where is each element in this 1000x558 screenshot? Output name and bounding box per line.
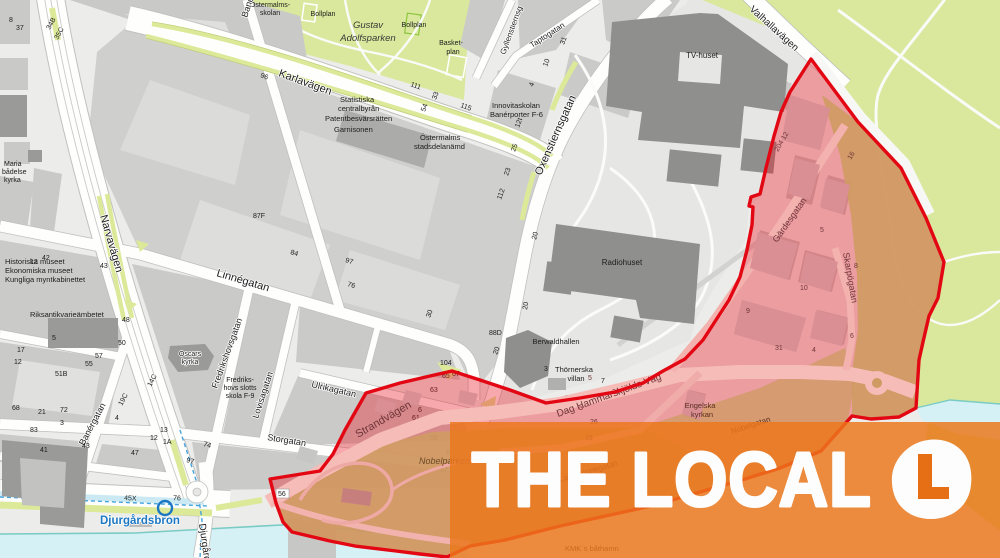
svg-text:47: 47 xyxy=(131,450,139,457)
svg-text:31: 31 xyxy=(775,345,783,352)
svg-text:9: 9 xyxy=(746,308,750,315)
svg-text:Basket-: Basket- xyxy=(439,40,463,47)
svg-text:Gustav: Gustav xyxy=(353,20,384,31)
svg-text:Engelska: Engelska xyxy=(685,401,717,410)
svg-text:Innovitaskolan: Innovitaskolan xyxy=(492,101,540,110)
svg-text:Fredriks-: Fredriks- xyxy=(226,377,254,384)
svg-text:Bollplan: Bollplan xyxy=(402,22,427,29)
svg-text:68: 68 xyxy=(12,405,20,412)
svg-text:Radiohuset: Radiohuset xyxy=(602,258,643,267)
svg-text:8: 8 xyxy=(9,17,13,24)
svg-text:Garnisonen: Garnisonen xyxy=(334,125,373,134)
svg-text:41: 41 xyxy=(40,447,48,454)
svg-text:56: 56 xyxy=(278,491,286,498)
svg-text:Riksantikvarieämbetet: Riksantikvarieämbetet xyxy=(30,310,105,319)
svg-text:55: 55 xyxy=(85,361,93,368)
svg-text:43: 43 xyxy=(100,263,108,270)
svg-text:3: 3 xyxy=(60,420,64,427)
svg-text:kyrka: kyrka xyxy=(4,177,21,184)
svg-text:skola F-9: skola F-9 xyxy=(226,393,255,400)
svg-text:8: 8 xyxy=(854,263,858,270)
svg-text:10: 10 xyxy=(800,285,808,292)
svg-text:12: 12 xyxy=(150,435,158,442)
svg-text:plan: plan xyxy=(446,49,459,56)
svg-text:bådelse: bådelse xyxy=(2,168,27,176)
svg-text:THE LOCAL: THE LOCAL xyxy=(472,437,872,523)
svg-text:51B: 51B xyxy=(55,371,68,378)
svg-text:Statistiska: Statistiska xyxy=(340,95,375,104)
svg-text:Thörnerska: Thörnerska xyxy=(555,365,594,374)
svg-text:12: 12 xyxy=(30,259,38,266)
svg-text:6: 6 xyxy=(850,333,854,340)
svg-text:Maria: Maria xyxy=(4,161,22,168)
svg-text:7: 7 xyxy=(601,378,605,385)
svg-text:12: 12 xyxy=(14,359,22,366)
svg-text:13: 13 xyxy=(160,427,168,434)
svg-text:5: 5 xyxy=(588,375,592,382)
svg-text:1A: 1A xyxy=(163,439,172,446)
svg-text:43: 43 xyxy=(82,443,90,450)
svg-text:kyrka: kyrka xyxy=(182,359,199,366)
svg-text:5: 5 xyxy=(820,227,824,234)
svg-text:21: 21 xyxy=(38,409,46,416)
svg-text:Ekonomiska museet: Ekonomiska museet xyxy=(5,266,73,275)
svg-text:Östermalms: Östermalms xyxy=(420,133,461,142)
svg-text:kyrkan: kyrkan xyxy=(691,410,713,419)
svg-text:88D: 88D xyxy=(489,330,502,337)
svg-text:TV-huset: TV-huset xyxy=(686,51,719,60)
svg-text:5: 5 xyxy=(52,335,56,342)
svg-text:hovs slotts: hovs slotts xyxy=(223,385,257,392)
svg-text:Berwaldhallen: Berwaldhallen xyxy=(532,337,579,346)
svg-text:Oscars: Oscars xyxy=(179,351,202,358)
svg-text:57: 57 xyxy=(95,353,103,360)
svg-text:48: 48 xyxy=(122,317,130,324)
svg-text:Kungliga myntkabinettet: Kungliga myntkabinettet xyxy=(5,275,86,284)
svg-text:villan: villan xyxy=(567,374,584,383)
svg-text:76: 76 xyxy=(173,495,181,502)
svg-text:stadsdelanämd: stadsdelanämd xyxy=(414,142,465,151)
svg-text:72: 72 xyxy=(60,407,68,414)
svg-text:83: 83 xyxy=(30,427,38,434)
svg-text:42: 42 xyxy=(42,255,50,262)
svg-text:Adolfsparken: Adolfsparken xyxy=(339,33,395,44)
svg-text:centralbyrån: centralbyrån xyxy=(338,104,379,113)
svg-text:17: 17 xyxy=(17,347,25,354)
svg-text:4: 4 xyxy=(812,347,816,354)
svg-text:104: 104 xyxy=(440,360,452,367)
svg-text:50: 50 xyxy=(118,340,126,347)
svg-text:20: 20 xyxy=(522,301,530,310)
svg-text:45X: 45X xyxy=(124,495,137,503)
svg-text:Patentbesvärsrätten: Patentbesvärsrätten xyxy=(325,114,392,123)
svg-text:Bollplan: Bollplan xyxy=(311,11,336,18)
svg-text:Djurgårdsbron: Djurgårdsbron xyxy=(100,515,180,527)
svg-text:4: 4 xyxy=(115,415,119,422)
svg-text:87F: 87F xyxy=(253,213,265,220)
svg-text:37: 37 xyxy=(16,25,24,32)
svg-text:skolan: skolan xyxy=(260,10,280,17)
svg-text:Östermalms-: Östermalms- xyxy=(250,1,291,9)
svg-text:3: 3 xyxy=(544,366,548,373)
